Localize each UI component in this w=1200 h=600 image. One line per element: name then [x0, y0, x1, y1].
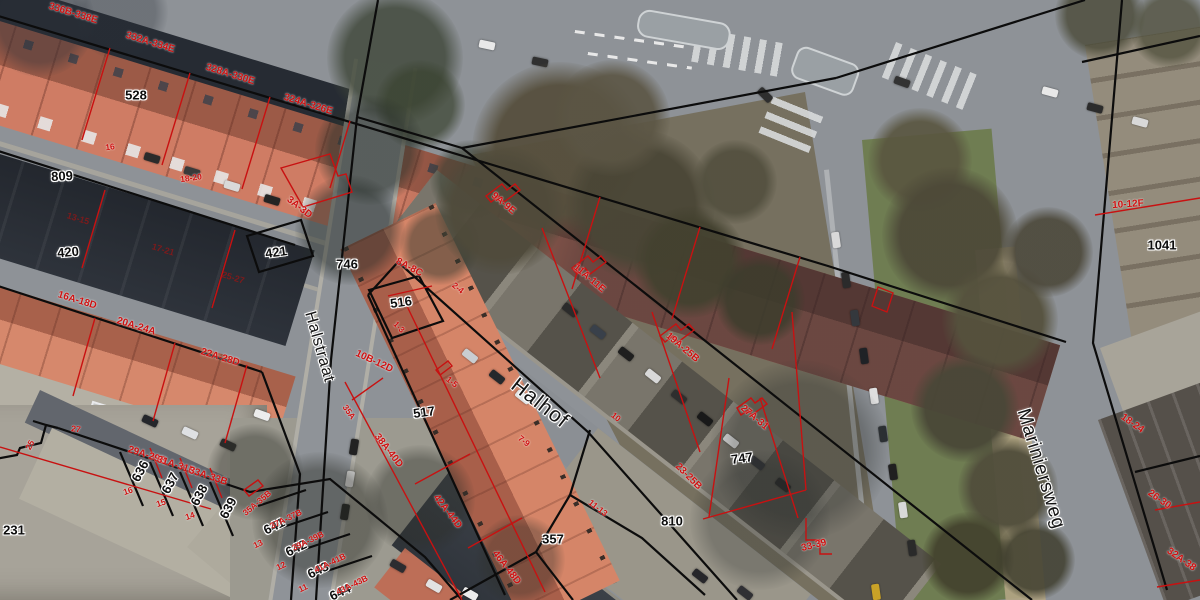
tree-canopy [1003, 207, 1093, 297]
tree-canopy [207, 424, 303, 520]
tree-canopy [295, 175, 405, 285]
tree-canopy [715, 255, 805, 345]
tree-canopy [995, 520, 1075, 600]
tree-canopy [365, 445, 475, 555]
map-viewport[interactable]: 5288094204217465165177478103571041231636… [0, 0, 1200, 600]
tree-canopy [1130, 0, 1200, 68]
tree-canopy [435, 145, 565, 275]
tree-canopy [554, 60, 670, 176]
tree-canopy [475, 515, 565, 600]
tree-canopy [693, 140, 777, 224]
tree-canopy-layer [0, 0, 1200, 600]
tree-canopy [690, 450, 830, 590]
